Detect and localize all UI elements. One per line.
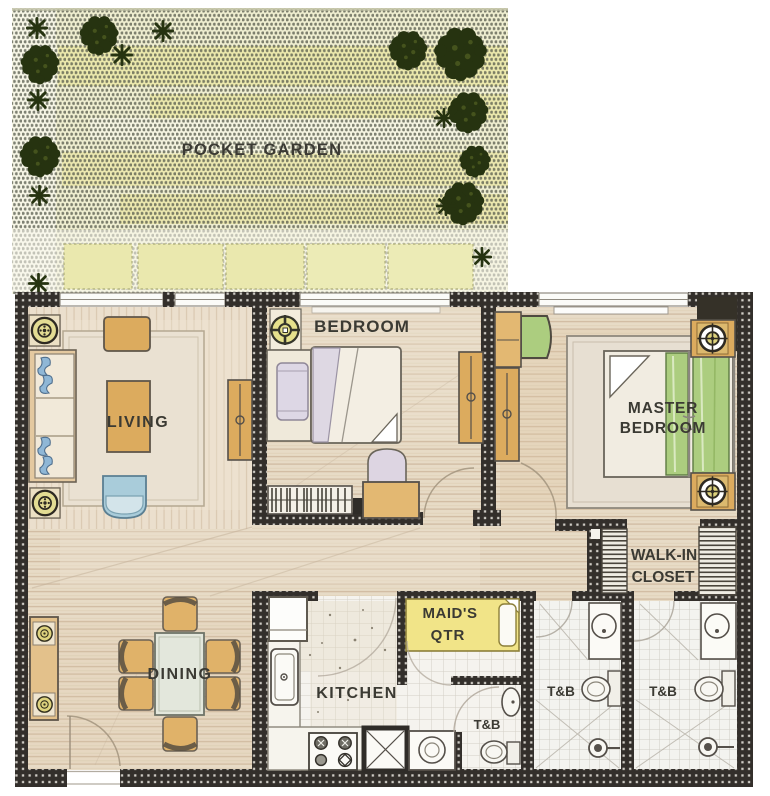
svg-text:LIVING: LIVING [107,414,169,431]
svg-text:T&B: T&B [547,684,575,699]
svg-text:KITCHEN: KITCHEN [316,685,398,702]
svg-text:T&B: T&B [649,684,677,699]
svg-text:POCKET GARDEN: POCKET GARDEN [182,141,342,159]
svg-text:BEDROOM: BEDROOM [620,420,707,437]
svg-text:MAID'S: MAID'S [423,605,478,622]
svg-text:QTR: QTR [431,627,466,644]
svg-text:T&B: T&B [474,717,501,732]
svg-text:MASTER: MASTER [628,400,698,417]
svg-text:DINING: DINING [148,666,213,683]
svg-text:WALK-IN: WALK-IN [631,547,697,564]
svg-text:BEDROOM: BEDROOM [314,317,410,336]
svg-text:CLOSET: CLOSET [632,569,695,586]
